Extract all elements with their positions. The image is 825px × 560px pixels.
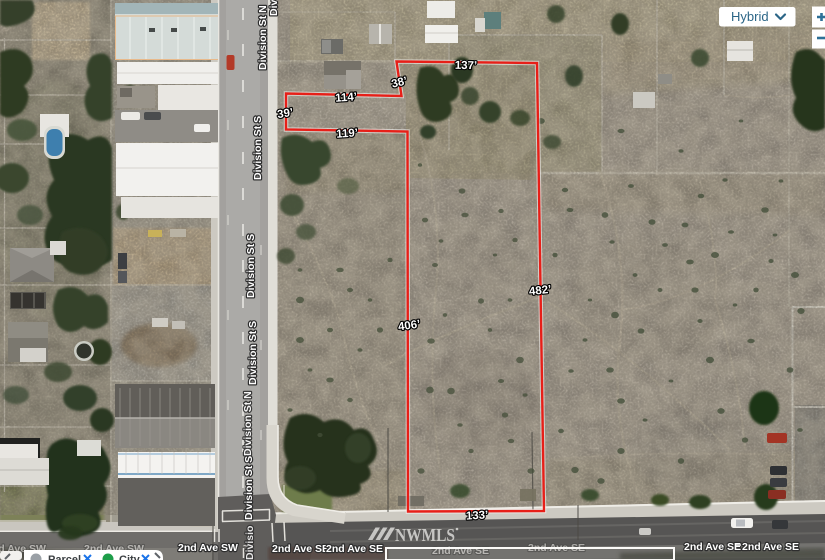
svg-text:133’: 133’	[466, 509, 489, 522]
svg-text:Parcel: Parcel	[48, 554, 81, 560]
svg-text:2nd Ave SE: 2nd Ave SE	[272, 543, 329, 555]
svg-text:2nd Ave SE: 2nd Ave SE	[326, 543, 383, 555]
svg-text:Division St S: Division St S	[252, 116, 264, 180]
svg-text:~: ~	[243, 541, 248, 551]
svg-text:2nd Ave SE: 2nd Ave SE	[742, 541, 799, 553]
svg-text:39’: 39’	[277, 107, 295, 121]
svg-text:City: City	[119, 554, 141, 560]
svg-text:114’: 114’	[335, 91, 358, 104]
svg-text:137’: 137’	[455, 60, 478, 72]
svg-text:Division St N: Division St N	[242, 391, 254, 456]
svg-text:Division St S: Division St S	[247, 321, 259, 385]
svg-text:Div: Div	[268, 0, 280, 16]
svg-text:2nd Ave SW: 2nd Ave SW	[178, 542, 238, 554]
svg-text:119’: 119’	[336, 127, 359, 140]
svg-text:Hybrid: Hybrid	[731, 9, 769, 24]
svg-text:2nd Ave SE: 2nd Ave SE	[432, 545, 489, 557]
svg-text:Division St S: Division St S	[245, 234, 257, 298]
svg-text:Division St S: Division St S	[243, 456, 255, 520]
svg-text:2nd Ave SE: 2nd Ave SE	[684, 541, 741, 553]
svg-text:NWMLS: NWMLS	[395, 525, 455, 545]
svg-text:482’: 482’	[528, 284, 552, 298]
